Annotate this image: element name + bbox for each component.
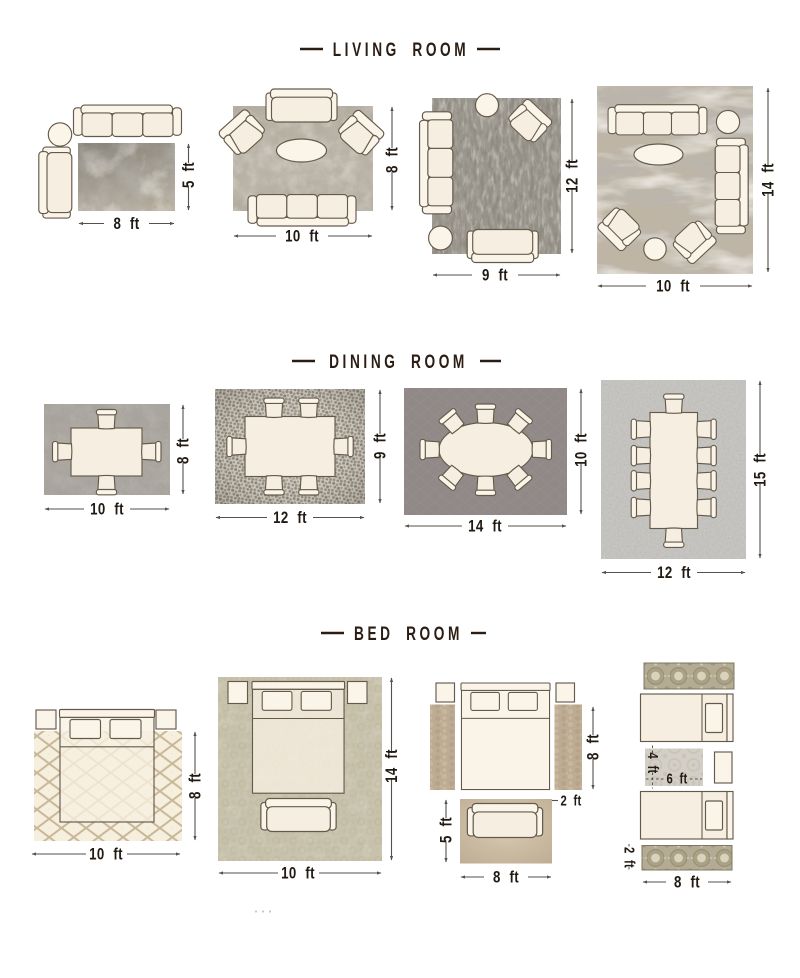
- svg-text:10 ft: 10 ft: [656, 277, 690, 296]
- svg-text:12 ft: 12 ft: [273, 509, 307, 528]
- svg-text:8 ft: 8 ft: [113, 215, 139, 234]
- svg-text:8 ft: 8 ft: [174, 438, 193, 464]
- svg-text:2 ft: 2 ft: [560, 792, 581, 809]
- svg-text:12 ft: 12 ft: [563, 159, 582, 193]
- svg-text:9 ft: 9 ft: [371, 433, 390, 459]
- svg-text:10 ft: 10 ft: [572, 433, 591, 467]
- svg-text:8 ft: 8 ft: [674, 873, 700, 892]
- svg-text:15 ft: 15 ft: [751, 453, 770, 487]
- svg-text:12 ft: 12 ft: [657, 564, 691, 583]
- svg-text:LIVING ROOM: LIVING ROOM: [333, 39, 470, 61]
- svg-text:14 ft: 14 ft: [468, 517, 502, 536]
- svg-text:14 ft: 14 ft: [383, 749, 402, 783]
- svg-text:10 ft: 10 ft: [90, 500, 124, 519]
- svg-text:10 ft: 10 ft: [89, 845, 123, 864]
- svg-text:5 ft: 5 ft: [437, 817, 456, 843]
- svg-text:8 ft: 8 ft: [383, 147, 402, 173]
- svg-text:10 ft: 10 ft: [281, 864, 315, 883]
- svg-text:6 ft: 6 ft: [666, 770, 687, 787]
- svg-text:4 ft: 4 ft: [645, 752, 662, 773]
- svg-text:5 ft: 5 ft: [180, 162, 199, 188]
- svg-text:8 ft: 8 ft: [186, 773, 205, 799]
- svg-text:9 ft: 9 ft: [482, 266, 508, 285]
- svg-text:8 ft: 8 ft: [584, 734, 603, 760]
- svg-text:14 ft: 14 ft: [759, 163, 778, 197]
- svg-text:10 ft: 10 ft: [285, 227, 319, 246]
- svg-text:DINING ROOM: DINING ROOM: [329, 351, 468, 373]
- svg-text:8 ft: 8 ft: [493, 868, 519, 887]
- svg-text:2 ft: 2 ft: [621, 847, 638, 868]
- svg-text:BED ROOM: BED ROOM: [354, 623, 463, 645]
